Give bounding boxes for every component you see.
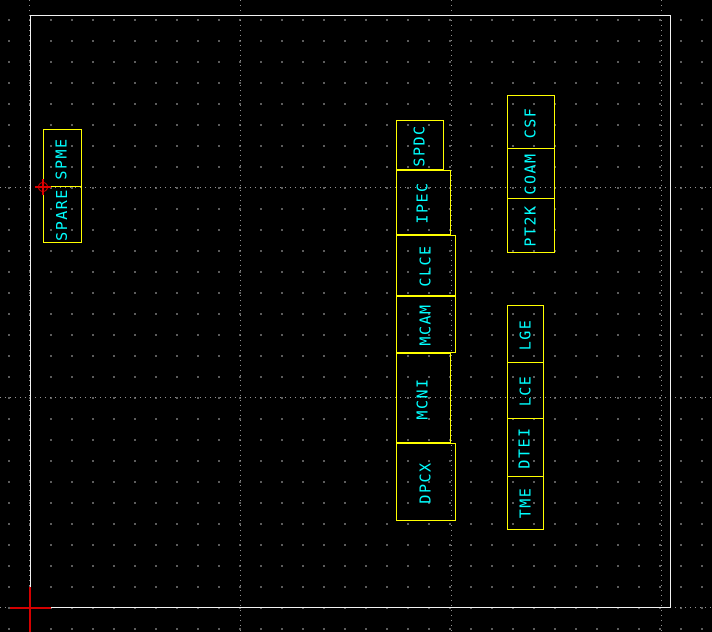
label-lge: LGE <box>518 318 533 350</box>
box-mcam[interactable]: MCAM <box>396 296 456 353</box>
box-ipec[interactable]: IPEC <box>396 170 451 235</box>
box-mcni[interactable]: MCNI <box>396 353 451 443</box>
label-spdc: SPDC <box>413 124 428 166</box>
label-mcam: MCAM <box>419 303 434 345</box>
cell-lce[interactable]: LCE <box>508 362 543 418</box>
cell-tme[interactable]: TME <box>508 476 543 528</box>
label-dpcx: DPCX <box>419 461 434 503</box>
cell-csf[interactable]: CSF <box>508 96 554 148</box>
cad-drawing-canvas[interactable]: SPME SPARE SPDC IPEC CLCE MCAM MCNI DPCX… <box>0 0 712 632</box>
label-ipec: IPEC <box>416 181 431 223</box>
cell-spme[interactable]: SPME <box>44 130 81 186</box>
label-tme: TME <box>518 487 533 519</box>
label-dtei: DTEI <box>518 426 533 468</box>
cell-coam[interactable]: COAM <box>508 148 554 198</box>
label-clce: CLCE <box>419 244 434 286</box>
label-spare: SPARE <box>55 188 70 241</box>
cell-lge[interactable]: LGE <box>508 306 543 362</box>
crosshair-vertical-line <box>29 587 31 632</box>
label-spme: SPME <box>55 137 70 179</box>
point-marker-icon[interactable] <box>35 179 51 195</box>
cell-pt2k[interactable]: PT2K <box>508 198 554 251</box>
box-dpcx[interactable]: DPCX <box>396 443 456 521</box>
label-csf: CSF <box>524 106 539 138</box>
label-coam: COAM <box>524 152 539 194</box>
box-clce[interactable]: CLCE <box>396 235 456 296</box>
cell-dtei[interactable]: DTEI <box>508 418 543 476</box>
label-lce: LCE <box>518 375 533 407</box>
block-csf-coam-pt2k[interactable]: CSF COAM PT2K <box>507 95 555 253</box>
point-marker-circle <box>38 182 48 192</box>
label-pt2k: PT2K <box>524 204 539 246</box>
box-spdc[interactable]: SPDC <box>396 120 444 170</box>
label-mcni: MCNI <box>416 377 431 419</box>
block-lge-lce-dtei-tme[interactable]: LGE LCE DTEI TME <box>507 305 544 530</box>
drawing-border-frame <box>30 15 671 608</box>
